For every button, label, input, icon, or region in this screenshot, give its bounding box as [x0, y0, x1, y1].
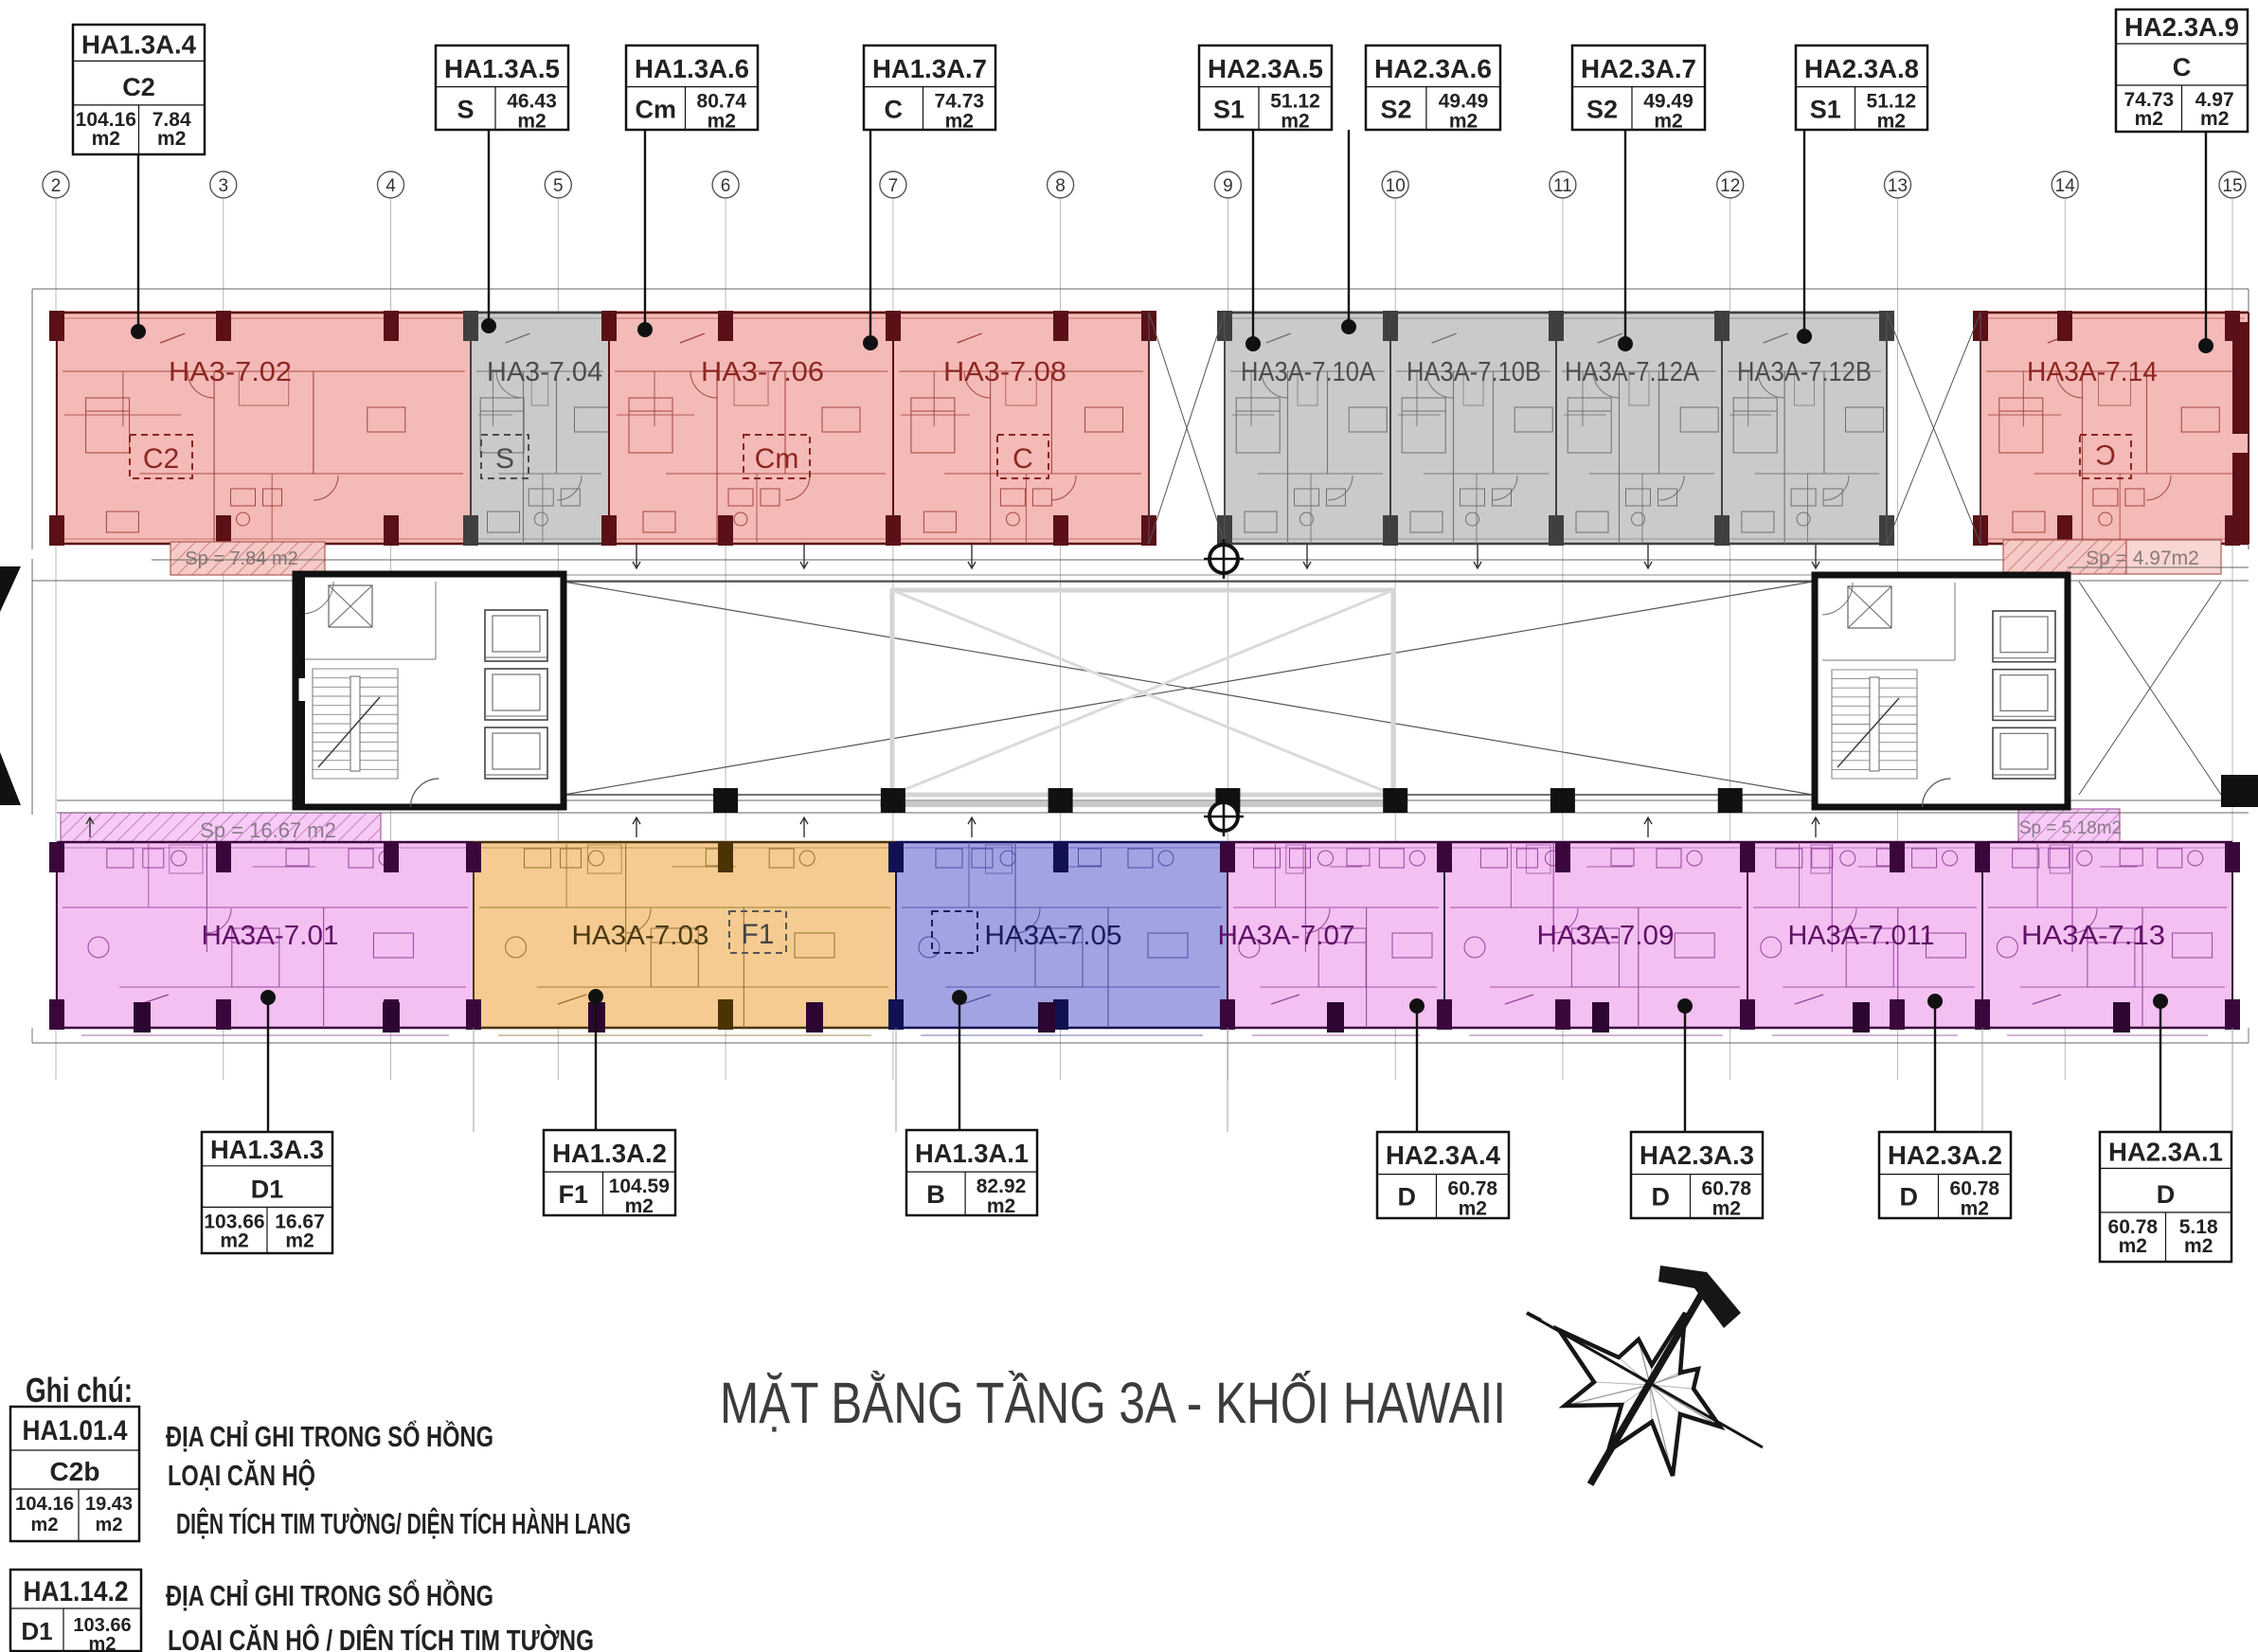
svg-text:104.16: 104.16: [15, 1494, 74, 1515]
svg-text:m2: m2: [2184, 1235, 2213, 1257]
svg-text:m2: m2: [1281, 111, 1309, 133]
svg-text:49.49: 49.49: [1439, 91, 1489, 113]
svg-text:HA1.01.4: HA1.01.4: [23, 1415, 128, 1446]
svg-text:HA3A-7.07: HA3A-7.07: [1218, 921, 1355, 951]
svg-text:C: C: [1013, 443, 1033, 475]
svg-text:D: D: [1900, 1183, 1919, 1212]
svg-text:HA2.3A.8: HA2.3A.8: [1804, 54, 1919, 83]
svg-text:HA3-7.06: HA3-7.06: [701, 357, 824, 387]
svg-text:HA2.3A.3: HA2.3A.3: [1640, 1140, 1754, 1170]
svg-text:HA3-7.02: HA3-7.02: [169, 357, 292, 387]
svg-text:13: 13: [1888, 176, 1908, 196]
svg-text:74.73: 74.73: [935, 91, 985, 113]
svg-text:m2: m2: [2119, 1235, 2147, 1257]
svg-text:m2: m2: [1877, 111, 1906, 133]
svg-text:m2: m2: [89, 1634, 116, 1652]
svg-text:HA2.3A.5: HA2.3A.5: [1208, 54, 1323, 83]
svg-text:HA1.14.2: HA1.14.2: [24, 1576, 129, 1607]
svg-text:HA3A-7.01: HA3A-7.01: [202, 921, 339, 951]
svg-text:m2: m2: [1712, 1198, 1741, 1220]
svg-text:D: D: [2157, 1180, 2176, 1209]
svg-text:104.59: 104.59: [609, 1176, 670, 1197]
svg-text:Sp = 7.84 m2: Sp = 7.84 m2: [185, 548, 298, 569]
svg-text:D1: D1: [21, 1617, 52, 1645]
svg-text:MẶT BẰNG TẦNG 3A - KHỐI HAWAII: MẶT BẰNG TẦNG 3A - KHỐI HAWAII: [720, 1371, 1506, 1435]
svg-text:HA3A-7.011: HA3A-7.011: [1788, 921, 1935, 951]
svg-text:HA2.3A.2: HA2.3A.2: [1888, 1140, 2002, 1170]
svg-text:2: 2: [51, 176, 62, 196]
svg-text:C2: C2: [143, 443, 179, 475]
svg-text:80.74: 80.74: [697, 91, 747, 113]
svg-text:m2: m2: [708, 111, 736, 133]
svg-text:9: 9: [1223, 176, 1233, 196]
svg-text:HA1.3A.7: HA1.3A.7: [872, 54, 987, 83]
svg-text:HA3A-7.14: HA3A-7.14: [2027, 357, 2158, 387]
svg-text:m2: m2: [945, 111, 974, 133]
svg-text:LOẠI CĂN HỘ / DIỆN TÍCH TIM TƯ: LOẠI CĂN HỘ / DIỆN TÍCH TIM TƯỜNG: [168, 1623, 594, 1652]
svg-text:60.78: 60.78: [1448, 1178, 1498, 1200]
svg-text:m2: m2: [987, 1195, 1015, 1217]
svg-text:Cm: Cm: [755, 443, 799, 475]
svg-text:HA1.3A.2: HA1.3A.2: [552, 1139, 667, 1168]
svg-text:HA3A-7.10B: HA3A-7.10B: [1407, 357, 1541, 387]
svg-text:m2: m2: [625, 1195, 654, 1217]
svg-text:7: 7: [888, 176, 899, 196]
svg-text:m2: m2: [2200, 108, 2229, 130]
svg-text:HA3A-7.13: HA3A-7.13: [2021, 921, 2165, 951]
svg-text:HA2.3A.1: HA2.3A.1: [2108, 1137, 2223, 1166]
svg-text:B: B: [926, 1180, 945, 1209]
svg-text:Cm: Cm: [636, 96, 677, 124]
svg-text:HA1.3A.1: HA1.3A.1: [915, 1139, 1029, 1168]
svg-text:S1: S1: [1213, 96, 1245, 124]
svg-text:60.78: 60.78: [1702, 1178, 1752, 1200]
svg-text:HA3A-7.12B: HA3A-7.12B: [1737, 357, 1872, 387]
svg-text:m2: m2: [2135, 108, 2163, 130]
svg-text:14: 14: [2055, 176, 2076, 196]
svg-text:4: 4: [385, 176, 396, 196]
svg-text:HA3A-7.03: HA3A-7.03: [572, 921, 709, 951]
svg-text:F1: F1: [559, 1180, 589, 1209]
svg-text:HA1.3A.6: HA1.3A.6: [635, 54, 749, 83]
svg-text:S1: S1: [1810, 96, 1841, 124]
svg-text:12: 12: [1720, 176, 1740, 196]
svg-text:6: 6: [721, 176, 731, 196]
svg-text:LOẠI CĂN HỘ: LOẠI CĂN HỘ: [168, 1458, 315, 1492]
svg-text:HA3A-7.12A: HA3A-7.12A: [1565, 357, 1700, 387]
svg-text:HA3A-7.05: HA3A-7.05: [985, 921, 1122, 951]
svg-text:S2: S2: [1586, 96, 1618, 124]
svg-text:HA3A-7.10A: HA3A-7.10A: [1241, 357, 1376, 387]
svg-text:S: S: [457, 96, 474, 124]
svg-text:HA3-7.08: HA3-7.08: [943, 357, 1066, 387]
svg-text:Sp = 4.97m2: Sp = 4.97m2: [2086, 548, 2199, 569]
svg-text:HA2.3A.7: HA2.3A.7: [1581, 54, 1696, 83]
svg-text:m2: m2: [1654, 111, 1682, 133]
svg-text:103.66: 103.66: [73, 1615, 131, 1636]
svg-text:C: C: [2173, 53, 2192, 81]
svg-text:10: 10: [1386, 176, 1406, 196]
svg-text:m2: m2: [92, 128, 120, 150]
svg-text:D1: D1: [251, 1175, 284, 1203]
svg-text:D: D: [1398, 1183, 1417, 1212]
svg-text:HA1.3A.3: HA1.3A.3: [210, 1135, 324, 1164]
svg-text:Sp = 5.18m2: Sp = 5.18m2: [2019, 818, 2122, 838]
svg-text:S: S: [495, 443, 514, 475]
svg-text:HA3A-7.09: HA3A-7.09: [1537, 921, 1675, 951]
svg-text:HA1.3A.5: HA1.3A.5: [444, 54, 560, 83]
svg-text:m2: m2: [220, 1230, 248, 1251]
svg-text:S2: S2: [1380, 96, 1411, 124]
svg-text:Sp = 16.67 m2: Sp = 16.67 m2: [200, 818, 336, 842]
svg-text:60.78: 60.78: [1950, 1178, 2000, 1200]
svg-text:82.92: 82.92: [977, 1176, 1027, 1197]
svg-text:m2: m2: [517, 111, 546, 133]
svg-text:19.43: 19.43: [85, 1494, 133, 1515]
svg-text:DIỆN TÍCH TIM TƯỜNG/ DIỆN TÍCH: DIỆN TÍCH TIM TƯỜNG/ DIỆN TÍCH HÀNH LANG: [176, 1506, 631, 1540]
svg-text:8: 8: [1055, 176, 1066, 196]
svg-text:m2: m2: [157, 128, 186, 150]
svg-text:m2: m2: [96, 1515, 123, 1535]
svg-text:C2: C2: [122, 73, 155, 101]
svg-text:5: 5: [553, 176, 564, 196]
svg-text:m2: m2: [31, 1515, 59, 1535]
svg-text:F1: F1: [741, 919, 774, 950]
svg-text:HA2.3A.9: HA2.3A.9: [2124, 12, 2239, 42]
svg-text:D: D: [1652, 1183, 1671, 1212]
svg-text:C2b: C2b: [50, 1457, 100, 1486]
svg-text:HA3-7.04: HA3-7.04: [487, 357, 602, 387]
svg-text:m2: m2: [1459, 1198, 1487, 1220]
svg-text:C: C: [2095, 439, 2116, 470]
svg-text:m2: m2: [1449, 111, 1478, 133]
svg-text:46.43: 46.43: [507, 91, 557, 113]
svg-text:HA1.3A.4: HA1.3A.4: [81, 29, 196, 59]
svg-text:HA2.3A.4: HA2.3A.4: [1386, 1140, 1500, 1170]
svg-text:HA2.3A.6: HA2.3A.6: [1374, 54, 1492, 83]
svg-text:11: 11: [1553, 176, 1572, 196]
svg-text:ĐỊA CHỈ GHI TRONG SỔ HỒNG: ĐỊA CHỈ GHI TRONG SỔ HỒNG: [166, 1419, 493, 1453]
svg-text:m2: m2: [285, 1230, 314, 1251]
svg-text:51.12: 51.12: [1867, 91, 1917, 113]
svg-text:51.12: 51.12: [1270, 91, 1320, 113]
svg-text:C: C: [885, 96, 904, 124]
svg-text:m2: m2: [1961, 1198, 1989, 1220]
svg-text:ĐỊA CHỈ GHI TRONG SỔ HỒNG: ĐỊA CHỈ GHI TRONG SỔ HỒNG: [166, 1578, 493, 1612]
svg-text:Ghi chú:: Ghi chú:: [26, 1371, 133, 1410]
svg-text:49.49: 49.49: [1643, 91, 1693, 113]
svg-text:3: 3: [219, 176, 229, 196]
svg-text:15: 15: [2222, 176, 2242, 196]
